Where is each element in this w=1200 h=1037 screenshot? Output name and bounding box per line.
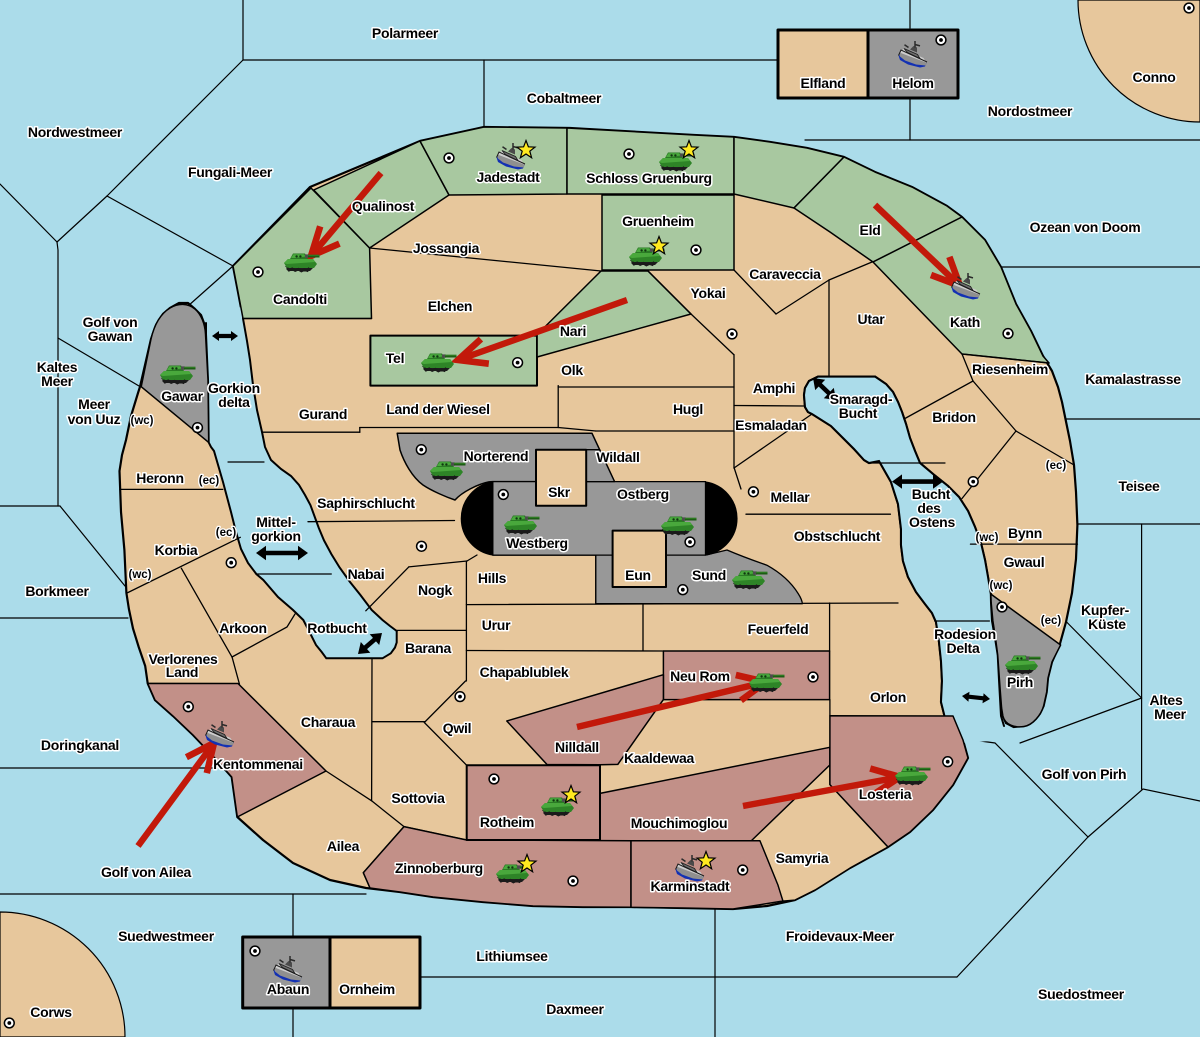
svg-text:Golf von Pirh: Golf von Pirh xyxy=(1042,766,1127,782)
svg-text:Hills: Hills xyxy=(478,570,507,586)
svg-text:Bucht: Bucht xyxy=(839,405,878,421)
svg-text:Elfland: Elfland xyxy=(801,75,846,91)
svg-text:Riesenheim: Riesenheim xyxy=(972,361,1048,377)
svg-text:Helom: Helom xyxy=(892,75,934,91)
svg-text:Norterend: Norterend xyxy=(464,448,529,464)
svg-text:Nordwestmeer: Nordwestmeer xyxy=(28,124,123,140)
svg-text:(wc): (wc) xyxy=(129,569,152,581)
svg-text:Chapablublek: Chapablublek xyxy=(480,664,569,680)
svg-text:Meer: Meer xyxy=(1154,706,1186,722)
svg-text:Gurand: Gurand xyxy=(299,406,347,422)
svg-text:Feuerfeld: Feuerfeld xyxy=(748,621,809,637)
svg-text:(wc): (wc) xyxy=(976,532,999,544)
svg-text:Utar: Utar xyxy=(857,311,885,327)
svg-text:Conno: Conno xyxy=(1132,69,1175,85)
svg-text:Kath: Kath xyxy=(950,314,980,330)
svg-text:Delta: Delta xyxy=(947,640,980,656)
svg-text:Candolti: Candolti xyxy=(273,291,327,307)
svg-text:Küste: Küste xyxy=(1088,616,1126,632)
svg-text:Nabai: Nabai xyxy=(348,566,385,582)
svg-text:Cobaltmeer: Cobaltmeer xyxy=(527,90,602,106)
svg-text:Mouchimoglou: Mouchimoglou xyxy=(631,815,728,831)
svg-text:Saphirschlucht: Saphirschlucht xyxy=(317,495,415,511)
svg-text:Meer: Meer xyxy=(41,373,73,389)
svg-text:Land der Wiesel: Land der Wiesel xyxy=(386,401,490,417)
svg-text:Bridon: Bridon xyxy=(932,409,976,425)
svg-text:Barana: Barana xyxy=(405,640,451,656)
svg-text:Sottovia: Sottovia xyxy=(391,790,445,806)
svg-text:delta: delta xyxy=(218,394,250,410)
svg-text:Skr: Skr xyxy=(548,484,571,500)
svg-text:Tel: Tel xyxy=(386,350,404,366)
svg-text:Urur: Urur xyxy=(482,617,511,633)
svg-text:Charaua: Charaua xyxy=(301,714,356,730)
svg-text:Gawar: Gawar xyxy=(161,388,203,404)
svg-text:Kentommenai: Kentommenai xyxy=(213,756,303,772)
svg-text:Heronn: Heronn xyxy=(136,470,184,486)
svg-text:Land: Land xyxy=(166,664,198,680)
svg-text:Olk: Olk xyxy=(561,362,583,378)
svg-text:Karminstadt: Karminstadt xyxy=(651,878,731,894)
svg-text:Borkmeer: Borkmeer xyxy=(25,583,89,599)
svg-text:Ozean von Doom: Ozean von Doom xyxy=(1030,219,1141,235)
svg-text:Corws: Corws xyxy=(30,1004,72,1020)
svg-text:Sund: Sund xyxy=(692,567,726,583)
svg-text:Hugl: Hugl xyxy=(673,401,703,417)
svg-text:Fungali-Meer: Fungali-Meer xyxy=(188,164,273,180)
svg-text:Gawan: Gawan xyxy=(88,328,133,344)
svg-text:Kaaldewaa: Kaaldewaa xyxy=(624,750,695,766)
svg-text:Abaun: Abaun xyxy=(267,981,309,997)
svg-text:Ornheim: Ornheim xyxy=(339,981,395,997)
svg-text:Nilldall: Nilldall xyxy=(555,739,599,755)
svg-text:Nogk: Nogk xyxy=(418,582,452,598)
svg-text:Jossangia: Jossangia xyxy=(413,240,480,256)
svg-text:Ostens: Ostens xyxy=(909,514,955,530)
svg-text:Caraveccia: Caraveccia xyxy=(749,266,821,282)
svg-text:Lithiumsee: Lithiumsee xyxy=(476,948,548,964)
svg-text:Ostberg: Ostberg xyxy=(617,486,669,502)
svg-text:Gwaul: Gwaul xyxy=(1004,554,1045,570)
svg-text:Elchen: Elchen xyxy=(428,298,472,314)
svg-text:Golf von Ailea: Golf von Ailea xyxy=(101,864,192,880)
svg-text:(ec): (ec) xyxy=(216,527,237,539)
svg-text:Polarmeer: Polarmeer xyxy=(372,25,439,41)
svg-text:Teisee: Teisee xyxy=(1118,478,1160,494)
svg-text:Qwil: Qwil xyxy=(443,720,472,736)
svg-text:(ec): (ec) xyxy=(1041,615,1062,627)
svg-text:Westberg: Westberg xyxy=(506,535,568,551)
svg-text:(ec): (ec) xyxy=(1046,460,1067,472)
svg-text:Zinnoberburg: Zinnoberburg xyxy=(395,860,483,876)
svg-text:gorkion: gorkion xyxy=(251,528,301,544)
svg-text:Jadestadt: Jadestadt xyxy=(476,169,540,185)
svg-text:Meer: Meer xyxy=(78,396,110,412)
svg-text:Korbia: Korbia xyxy=(155,542,198,558)
svg-text:von Uuz: von Uuz xyxy=(68,411,121,427)
svg-text:Froidevaux-Meer: Froidevaux-Meer xyxy=(786,928,895,944)
svg-text:Suedwestmeer: Suedwestmeer xyxy=(118,928,215,944)
svg-text:Neu Rom: Neu Rom xyxy=(670,668,730,684)
svg-text:Esmaladan: Esmaladan xyxy=(735,417,807,433)
svg-text:Rotheim: Rotheim xyxy=(480,814,534,830)
svg-text:Wildall: Wildall xyxy=(596,449,639,465)
svg-text:Eld: Eld xyxy=(859,222,880,238)
svg-text:Mellar: Mellar xyxy=(771,489,811,505)
svg-text:Obstschlucht: Obstschlucht xyxy=(794,528,881,544)
svg-text:Samyria: Samyria xyxy=(776,850,829,866)
svg-text:Qualinost: Qualinost xyxy=(352,198,415,214)
svg-text:Amphi: Amphi xyxy=(753,380,795,396)
svg-text:Daxmeer: Daxmeer xyxy=(546,1001,604,1017)
svg-text:Arkoon: Arkoon xyxy=(219,620,267,636)
svg-text:Bynn: Bynn xyxy=(1008,525,1042,541)
svg-text:Kamalastrasse: Kamalastrasse xyxy=(1085,371,1181,387)
svg-text:Schloss Gruenburg: Schloss Gruenburg xyxy=(586,170,712,186)
svg-text:Doringkanal: Doringkanal xyxy=(41,737,119,753)
svg-text:Eun: Eun xyxy=(625,567,651,583)
svg-text:Nordostmeer: Nordostmeer xyxy=(988,103,1073,119)
svg-text:(wc): (wc) xyxy=(131,415,154,427)
svg-text:Suedostmeer: Suedostmeer xyxy=(1038,986,1125,1002)
svg-text:Ailea: Ailea xyxy=(327,838,360,854)
svg-text:Orlon: Orlon xyxy=(870,689,906,705)
svg-text:Nari: Nari xyxy=(560,323,586,339)
svg-text:(wc): (wc) xyxy=(990,580,1013,592)
svg-text:Rotbucht: Rotbucht xyxy=(307,620,367,636)
svg-text:Gruenheim: Gruenheim xyxy=(622,213,694,229)
svg-text:Losteria: Losteria xyxy=(859,786,912,802)
svg-text:Pirh: Pirh xyxy=(1007,674,1033,690)
svg-text:(ec): (ec) xyxy=(199,475,220,487)
svg-text:Yokai: Yokai xyxy=(690,285,725,301)
